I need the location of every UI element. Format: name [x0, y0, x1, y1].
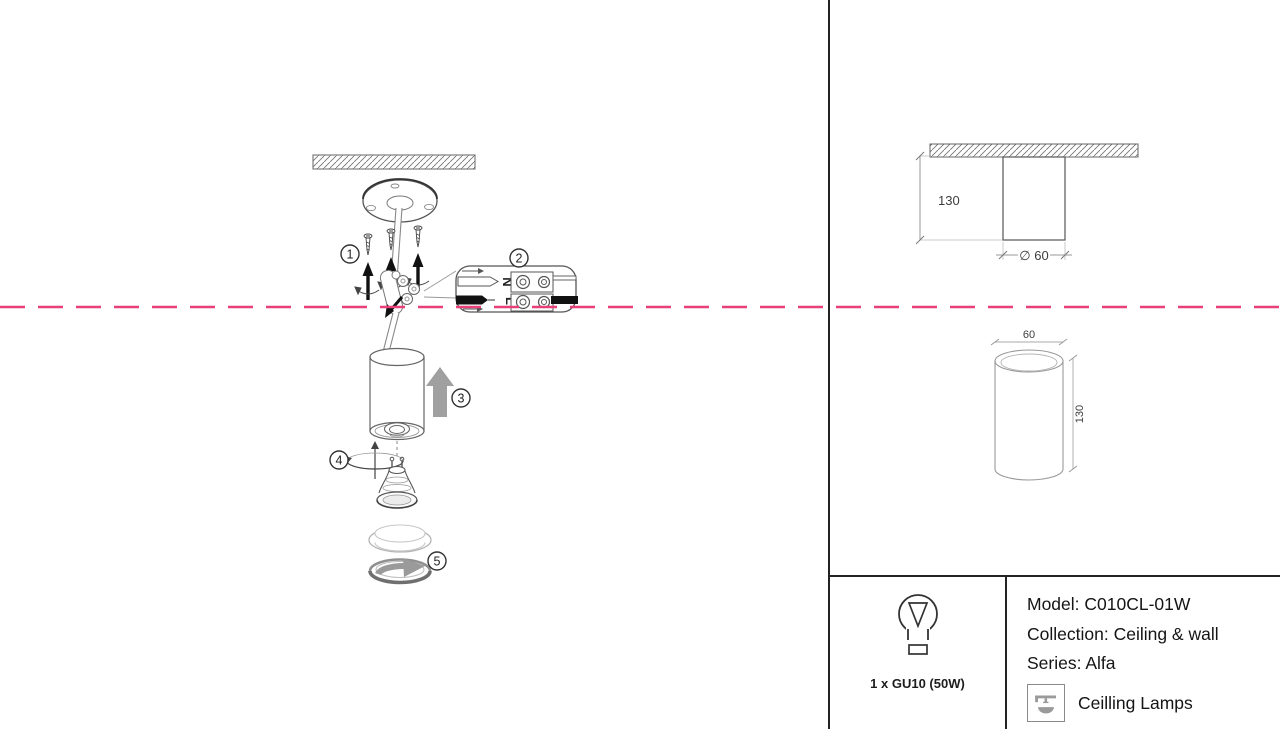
series-line: Series: Alfa	[1027, 653, 1272, 674]
category-label: Ceilling Lamps	[1078, 693, 1193, 714]
cable-lower	[383, 313, 399, 352]
installation-diagram: 1 N L	[0, 0, 830, 729]
svg-text:4: 4	[336, 454, 343, 468]
ceiling-hatch	[930, 144, 1138, 157]
svg-text:3: 3	[458, 392, 465, 406]
step-5-badge: 5	[428, 552, 446, 570]
step-2-badge: 2	[510, 249, 528, 267]
ceiling-lamp-icon	[1027, 684, 1065, 722]
trim-ring	[369, 525, 431, 552]
fixture-outline	[1003, 157, 1065, 240]
height-dim-label: 130	[938, 193, 960, 208]
side-view-drawing: 130 ∅ 60	[916, 144, 1138, 263]
svg-text:5: 5	[434, 555, 441, 569]
step-3-badge: 3	[452, 389, 470, 407]
diameter-dim-label: ∅ 60	[1019, 248, 1048, 263]
product-info-cell: Model: C010CL-01W Collection: Ceiling & …	[1007, 577, 1280, 729]
model-line: Model: C010CL-01W	[1027, 594, 1272, 615]
dimension-drawings: 130 ∅ 60 60 130	[830, 0, 1280, 575]
lamp-body	[370, 349, 424, 440]
ceiling-hatch	[313, 155, 475, 169]
collection-line: Collection: Ceiling & wall	[1027, 624, 1272, 645]
locking-ring	[370, 558, 430, 583]
bulb-spec-cell: 1 x GU10 (50W)	[830, 577, 1007, 729]
svg-text:1: 1	[347, 248, 354, 262]
step-1-badge: 1	[341, 245, 359, 263]
fold-line	[0, 303, 1280, 311]
iso-height-label: 130	[1074, 405, 1086, 423]
category-row: Ceilling Lamps	[1027, 684, 1272, 722]
lamp-count: 1 x GU10 (50W)	[870, 676, 965, 691]
spec-panel: 1 x GU10 (50W) Model: C010CL-01W Collect…	[830, 575, 1280, 729]
bulb-icon	[882, 590, 954, 666]
up-arrow-icon	[426, 367, 454, 417]
iso-diameter-label: 60	[1023, 329, 1035, 341]
detail-leader-lines	[424, 271, 456, 298]
iso-view-drawing: 60 130	[991, 329, 1086, 480]
step-4-badge: 4	[330, 451, 348, 469]
svg-text:2: 2	[516, 252, 523, 266]
neutral-wire	[458, 277, 498, 286]
gu10-bulb	[377, 441, 417, 508]
